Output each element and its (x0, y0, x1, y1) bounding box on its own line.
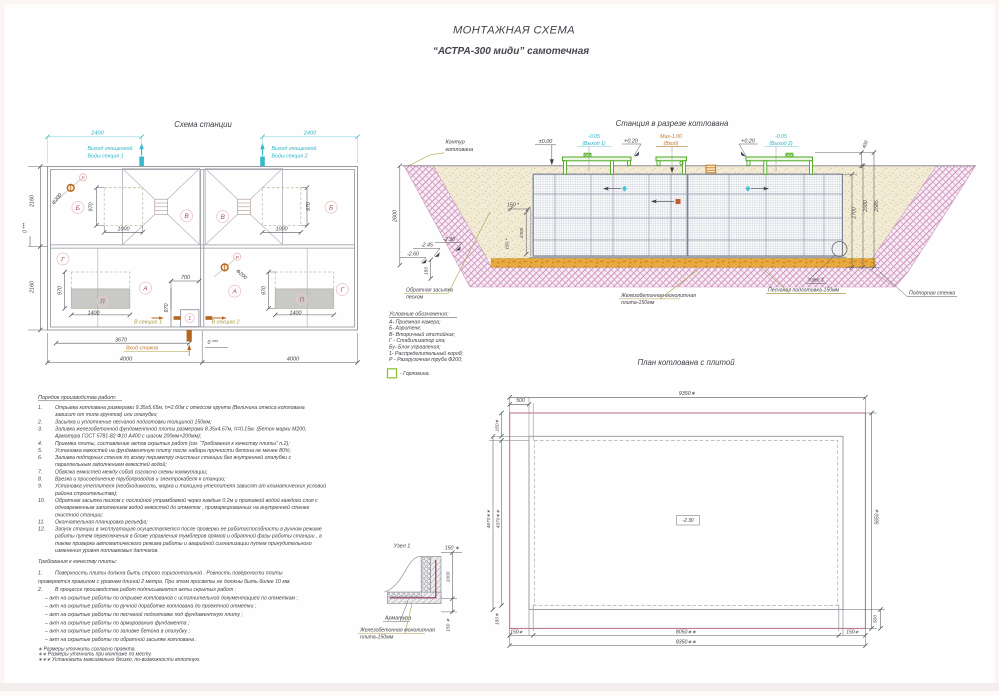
svg-text:150 ∗: 150 ∗ (446, 618, 452, 631)
svg-text:+0.20: +0.20 (741, 139, 755, 145)
svg-text:2400: 2400 (90, 130, 104, 136)
svg-text:5.: 5. (38, 448, 42, 454)
svg-text:2700: 2700 (852, 207, 858, 220)
svg-text:-0.05: -0.05 (588, 134, 600, 140)
svg-text:Арматура: Арматура (384, 616, 411, 622)
svg-text:2500: 2500 (863, 200, 869, 213)
svg-text:Заливка подпорных стенок по вс: Заливка подпорных стенок по всему периме… (55, 454, 291, 461)
svg-text:-2.45: -2.45 (421, 243, 433, 249)
svg-text:Воды секция 1: Воды секция 1 (88, 153, 124, 159)
svg-text:Требования к качеству плиты:: Требования к качеству плиты: (38, 559, 118, 565)
svg-text:1000: 1000 (446, 571, 452, 582)
svg-text:9350∗: 9350∗ (679, 391, 696, 397)
svg-text:Вход стоков: Вход стоков (126, 345, 158, 351)
svg-text:Обратная засыпка песком с посл: Обратная засыпка песком с послойной утра… (55, 497, 318, 504)
svg-text:Поверхность плиты должна быть: Поверхность плиты должна быть строго гор… (55, 570, 283, 577)
svg-text:150∗: 150∗ (510, 629, 523, 635)
svg-text:4670∗∗: 4670∗∗ (486, 510, 492, 529)
svg-text:Заливка железобетонной фундаме: Заливка железобетонной фундаментной плит… (55, 425, 306, 432)
svg-text:2.: 2. (37, 419, 42, 425)
svg-text:+0.20: +0.20 (624, 139, 638, 145)
svg-text:Б- Аэротенк;: Б- Аэротенк; (389, 326, 422, 332)
svg-text:970: 970 (164, 304, 170, 313)
svg-text:зависит от типа грунтов) или о: зависит от типа грунтов) или опалубки; (54, 412, 158, 418)
svg-text:плита-150мм: плита-150мм (621, 300, 655, 306)
svg-text:- Горловина.: - Горловина. (400, 371, 430, 377)
svg-text:А- Приемная камера;: А- Приемная камера; (388, 319, 441, 325)
svg-text:150 *: 150 * (507, 202, 520, 208)
svg-text:970: 970 (262, 286, 268, 295)
svg-text:– акт на скрытые работы по арм: – акт на скрытые работы по армированию ф… (44, 620, 190, 626)
svg-text:10.: 10. (38, 498, 45, 504)
svg-text:970: 970 (306, 202, 312, 211)
svg-text:500: 500 (873, 615, 879, 623)
svg-text:970: 970 (58, 286, 64, 295)
svg-text:1.: 1. (38, 405, 42, 411)
svg-text:4.: 4. (38, 441, 42, 447)
svg-text:Обратная засыпка: Обратная засыпка (406, 288, 453, 294)
svg-text:Г: Г (341, 287, 345, 294)
svg-text:Железобетонная монолитная: Железобетонная монолитная (620, 293, 696, 299)
svg-text:2.: 2. (37, 587, 42, 593)
svg-text:Обвязка емкостей между собой с: Обвязка емкостей между собой согласно сх… (55, 468, 208, 475)
svg-text:Выход очищенной: Выход очищенной (272, 145, 317, 152)
svg-text:150 ∗: 150 ∗ (445, 546, 460, 552)
svg-text:Установка емкостей на фундамен: Установка емкостей на фундаментную плиту… (55, 447, 291, 454)
svg-text:– акт на скрытые работы по отр: – акт на скрытые работы по отрывке котло… (44, 594, 298, 601)
svg-text:– акт на скрытые работы по пес: – акт на скрытые работы по песчаной подг… (44, 611, 243, 618)
svg-text:Выход очищенной: Выход очищенной (88, 145, 133, 152)
svg-text:– акт на скрытые работы по зал: – акт на скрытые работы по заливке бетон… (44, 629, 190, 635)
svg-text:2160: 2160 (30, 281, 36, 294)
svg-text:1: 1 (188, 316, 191, 322)
svg-text:2160: 2160 (30, 195, 36, 208)
svg-text:2600: 2600 (393, 210, 399, 223)
svg-text:0 ***: 0 *** (208, 340, 219, 346)
svg-text:Арматура ГОСТ 5781-82 Ф10 А400: Арматура ГОСТ 5781-82 Ф10 А400 с шагом 2… (54, 434, 202, 440)
svg-text:9.: 9. (38, 484, 42, 490)
svg-text:8.: 8. (38, 477, 42, 483)
svg-text:очистной станции;: очистной станции; (55, 511, 104, 518)
svg-text:параллельным заполнением емкос: параллельным заполнением емкостей водой; (55, 461, 167, 468)
svg-text:1.: 1. (38, 571, 42, 577)
svg-text:А: А (142, 285, 148, 292)
svg-text:В- Вторичный отстойник;: В- Вторичный отстойник; (389, 331, 456, 338)
svg-text:8350∗∗: 8350∗∗ (676, 640, 697, 646)
svg-text:Приемка плиты, составление акт: Приемка плиты, составление актов скрытых… (55, 441, 290, 447)
svg-text:В процессе производства работ: В процессе производства работ подписываю… (55, 587, 237, 593)
svg-text:Узел 1: Узел 1 (807, 278, 824, 284)
svg-text:МОНТАЖНАЯ СХЕМА: МОНТАЖНАЯ СХЕМА (453, 25, 575, 37)
svg-text:150 *: 150 * (505, 238, 511, 249)
svg-text:±0.00: ±0.00 (539, 139, 552, 145)
svg-text:Р - Разгрузочная труба Ф200;: Р - Разгрузочная труба Ф200; (389, 357, 463, 363)
svg-text:Подпорная стенка: Подпорная стенка (909, 291, 955, 297)
svg-text:1000: 1000 (276, 226, 288, 232)
svg-text:2400: 2400 (303, 130, 317, 136)
svg-text:-2.60: -2.60 (407, 251, 419, 257)
svg-text:– акт на скрытые работы по руч: – акт на скрытые работы по ручной дорабо… (44, 603, 257, 610)
svg-text:150: 150 (424, 267, 430, 275)
svg-text:11.: 11. (38, 519, 45, 525)
svg-text:3.: 3. (38, 426, 42, 432)
svg-text:Установка утеплителя (необходи: Установка утеплителя (необходимость, мар… (55, 483, 326, 490)
svg-text:970: 970 (89, 203, 95, 212)
svg-text:6.: 6. (38, 455, 42, 461)
svg-text:В: В (220, 214, 225, 221)
svg-text:1- Распределительный короб;: 1- Распределительный короб; (389, 350, 464, 357)
svg-text:Контур: Контур (446, 140, 465, 146)
svg-text:(Вход): (Вход) (663, 141, 678, 147)
svg-text:также проверка автоматического: также проверка автоматического режима ра… (55, 540, 312, 547)
svg-text:700: 700 (181, 275, 190, 281)
svg-text:В секцию 1: В секцию 1 (134, 319, 162, 325)
svg-text:1000: 1000 (519, 227, 525, 238)
svg-text:∗∗∗ Установить максимально бли: ∗∗∗ Установить максимально близко, по-во… (38, 657, 201, 663)
svg-text:А: А (231, 289, 237, 296)
svg-text:Засыпка и уплотнение песчаной: Засыпка и уплотнение песчаной подготовки… (55, 418, 212, 425)
svg-text:Порядок производства работ:: Порядок производства работ: (38, 395, 117, 401)
svg-text:В секцию 2: В секцию 2 (212, 319, 240, 325)
svg-text:Отрывка котлована размерами 9.: Отрывка котлована размерами 9.35х5.65м, … (55, 405, 305, 411)
svg-text:150∗: 150∗ (846, 629, 859, 635)
svg-text:– акт на скрытые работы по обр: – акт на скрытые работы по обратной засы… (44, 636, 197, 643)
svg-text:Врезка и присоединение трубопр: Врезка и присоединение трубопроводов и э… (55, 477, 226, 483)
svg-text:4000: 4000 (120, 357, 133, 363)
svg-text:Условные обозначения:: Условные обозначения: (388, 312, 449, 318)
svg-text:одновременным заполнением водо: одновременным заполнением водой емкостей… (55, 504, 309, 511)
svg-text:Воды секция 2: Воды секция 2 (272, 153, 308, 159)
svg-text:1000: 1000 (118, 226, 130, 232)
svg-text:проверяется правилом с уровнем: проверяется правилом с уровнем длиной 2 … (38, 578, 291, 585)
svg-text:Б: Б (76, 205, 81, 212)
svg-text:План котлована с плитой: План котлована с плитой (637, 358, 735, 367)
svg-text:Железобетонная монолитная: Железобетонная монолитная (359, 628, 435, 634)
svg-text:12.: 12. (38, 527, 45, 533)
svg-text:-0.05: -0.05 (775, 134, 787, 140)
svg-text:котлована: котлована (446, 147, 474, 153)
svg-text:(Выход 1): (Выход 1) (582, 141, 606, 147)
svg-text:1400: 1400 (88, 310, 100, 316)
svg-text:500: 500 (516, 398, 525, 404)
svg-text:Окончательная планировка релье: Окончательная планировка рельефа; (55, 519, 148, 525)
svg-text:района строительства);: района строительства); (54, 490, 118, 497)
svg-text:Схема станции: Схема станции (174, 120, 232, 129)
svg-text:7.: 7. (38, 469, 42, 475)
svg-text:-2.30: -2.30 (682, 518, 694, 524)
svg-text:4000: 4000 (287, 357, 300, 363)
svg-text:2585: 2585 (874, 200, 880, 213)
svg-text:0 ***: 0 *** (23, 222, 29, 233)
svg-text:Бу- Блок управления;: Бу- Блок управления; (389, 345, 441, 351)
svg-text:Мах-1.00: Мах-1.00 (660, 134, 682, 140)
svg-text:150∗: 150∗ (495, 613, 501, 625)
svg-text:работы путем переключения в бл: работы путем переключения в блоке управл… (54, 533, 322, 540)
svg-text:1400: 1400 (290, 310, 302, 316)
svg-text:Б: Б (329, 205, 334, 212)
svg-text:150∗: 150∗ (495, 419, 501, 431)
svg-text:-2.30: -2.30 (443, 237, 455, 243)
svg-text:8050∗∗: 8050∗∗ (676, 629, 697, 635)
svg-text:(Выход 2): (Выход 2) (769, 141, 793, 147)
svg-text:3670: 3670 (115, 337, 127, 343)
svg-text:В: В (184, 213, 189, 220)
svg-text:Узел 1: Узел 1 (393, 544, 411, 550)
svg-text:плита-150мм: плита-150мм (360, 635, 394, 641)
svg-text:Запуск станции в эксплуатацию: Запуск станции в эксплуатацию осуществля… (55, 527, 322, 533)
svg-text:Г - Стабилизатор ила;: Г - Стабилизатор ила; (389, 338, 446, 344)
svg-text:Станция в разрезе котлована: Станция в разрезе котлована (616, 119, 729, 128)
svg-text:песком: песком (406, 295, 424, 301)
svg-text:4370∗∗: 4370∗∗ (496, 510, 502, 529)
svg-text:изменения уровня поплавковых д: изменения уровня поплавковых датчиков. (55, 548, 159, 554)
svg-text:5650∗: 5650∗ (875, 509, 881, 525)
svg-text:Г: Г (61, 256, 65, 263)
svg-text:“АСТРА-300 миди” самотечная: “АСТРА-300 миди” самотечная (433, 46, 589, 57)
svg-text:Песчаная подготовка-150мм: Песчаная подготовка-150мм (768, 288, 840, 294)
